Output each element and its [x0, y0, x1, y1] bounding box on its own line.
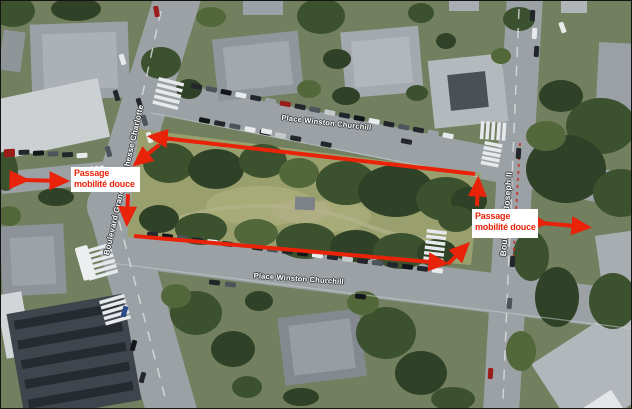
- corner-southeast-arrow: [448, 247, 465, 264]
- passage-mobilite-douce-label-west: Passage mobilité douce: [71, 167, 140, 192]
- perimeter-top-arrow: [154, 137, 475, 174]
- corner-northwest-arrow: [138, 145, 159, 162]
- passage-label-line1: Passage: [475, 211, 536, 222]
- passage-label-line2: mobilité douce: [74, 179, 138, 190]
- passage-label-line2: mobilité douce: [475, 222, 536, 233]
- aerial-map: Place Winston Churchill Place Winston Ch…: [0, 0, 632, 409]
- east-double-arrow: [542, 223, 585, 227]
- passage-label-line1: Passage: [74, 168, 138, 179]
- annotation-overlay: [1, 1, 632, 409]
- west-double-arrow: [23, 180, 63, 181]
- west-passage-down-arrow: [127, 194, 128, 220]
- east-passage-up-arrow: [477, 183, 478, 206]
- passage-mobilite-douce-label-east: Passage mobilité douce: [472, 209, 538, 238]
- perimeter-bottom-arrow: [134, 236, 442, 263]
